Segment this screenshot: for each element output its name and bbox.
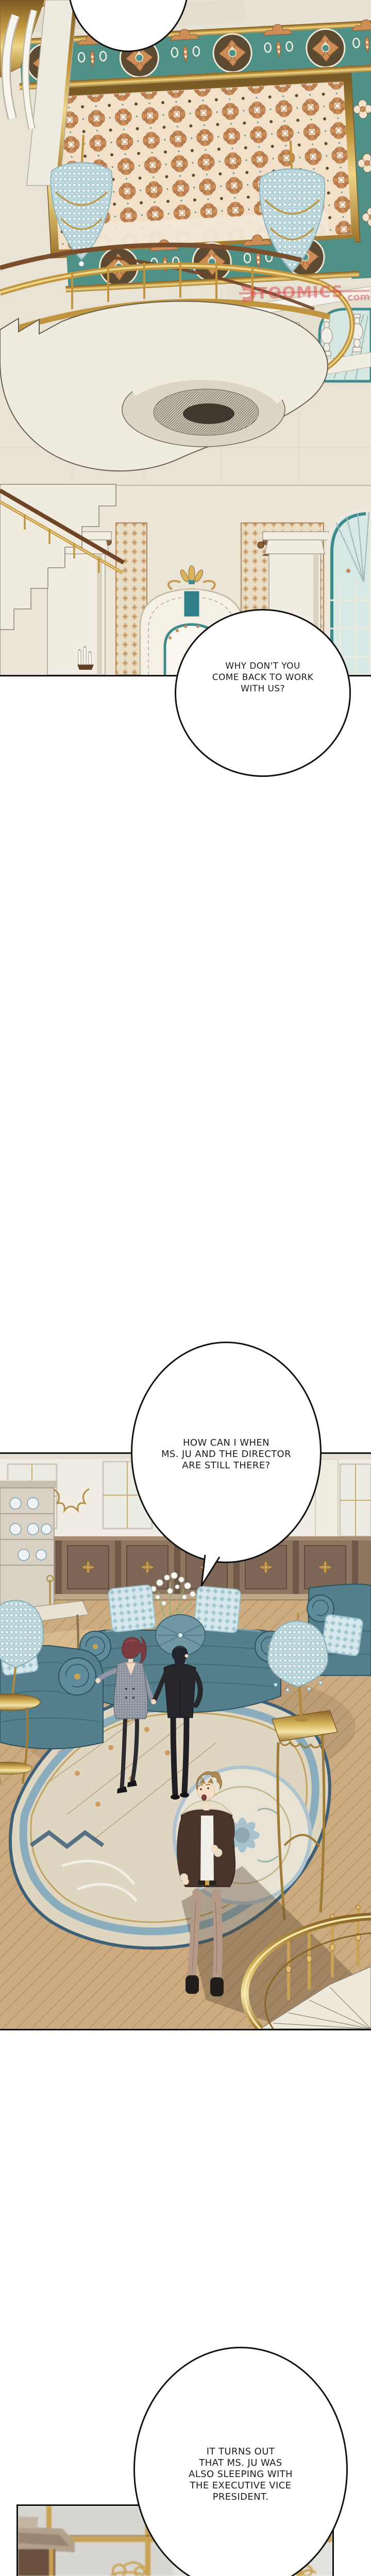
speech-line: IT TURNS OUT: [189, 2446, 293, 2458]
speech-line: ARE STILL THERE?: [161, 1460, 291, 1471]
speech-line: WITH US?: [212, 683, 314, 694]
speech-bubble-2-tail: [195, 1550, 228, 1590]
speech-line: PRESIDENT.: [189, 2492, 293, 2503]
watermark: TOOMICS.com: [238, 276, 370, 309]
watermark-suffix: .com: [344, 291, 370, 303]
speech-bubble-3: IT TURNS OUT THAT MS. JU WAS ALSO SLEEPI…: [133, 2347, 348, 2576]
speech-line: HOW CAN I WHEN: [161, 1437, 291, 1449]
speech-bubble-2: HOW CAN I WHEN MS. JU AND THE DIRECTOR A…: [131, 1342, 322, 1563]
speech-line: ALSO SLEEPING WITH: [189, 2469, 293, 2480]
speech-bubble-1: WHY DON'T YOU COME BACK TO WORK WITH US?: [175, 609, 351, 777]
display-cabinet: [0, 1481, 57, 1608]
speech-text-3: IT TURNS OUT THAT MS. JU WAS ALSO SLEEPI…: [189, 2446, 293, 2503]
speech-line: THE EXECUTIVE VICE: [189, 2480, 293, 2492]
speech-line: COME BACK TO WORK: [212, 672, 314, 683]
comic-page: TOOMICS.com: [0, 0, 371, 2576]
speech-line: WHY DON'T YOU: [212, 660, 314, 672]
panel-grand-hall: [0, 0, 371, 676]
speech-line: MS. JU AND THE DIRECTOR: [161, 1449, 291, 1460]
speech-line: THAT MS. JU WAS: [189, 2458, 293, 2469]
speech-text-2: HOW CAN I WHEN MS. JU AND THE DIRECTOR A…: [161, 1437, 291, 1471]
grand-hall-artwork: [0, 0, 371, 675]
speech-text-1: WHY DON'T YOU COME BACK TO WORK WITH US?: [212, 660, 314, 694]
